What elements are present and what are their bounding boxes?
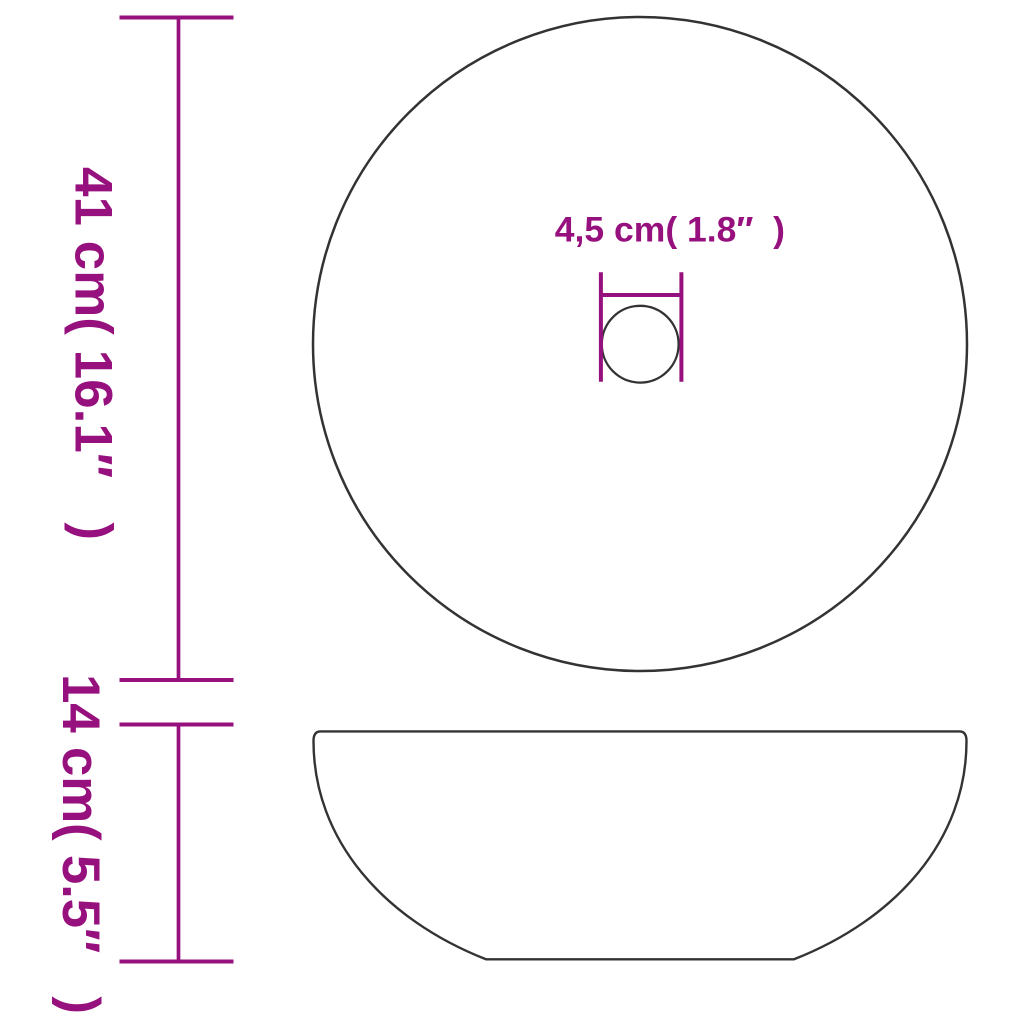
- svg-text:41 cm( 16.1″ ): 41 cm( 16.1″ ): [64, 167, 123, 540]
- svg-text:14 cm( 5.5″ ): 14 cm( 5.5″ ): [51, 674, 110, 1014]
- svg-text:4,5 cm( 1.8″ ): 4,5 cm( 1.8″ ): [555, 209, 785, 249]
